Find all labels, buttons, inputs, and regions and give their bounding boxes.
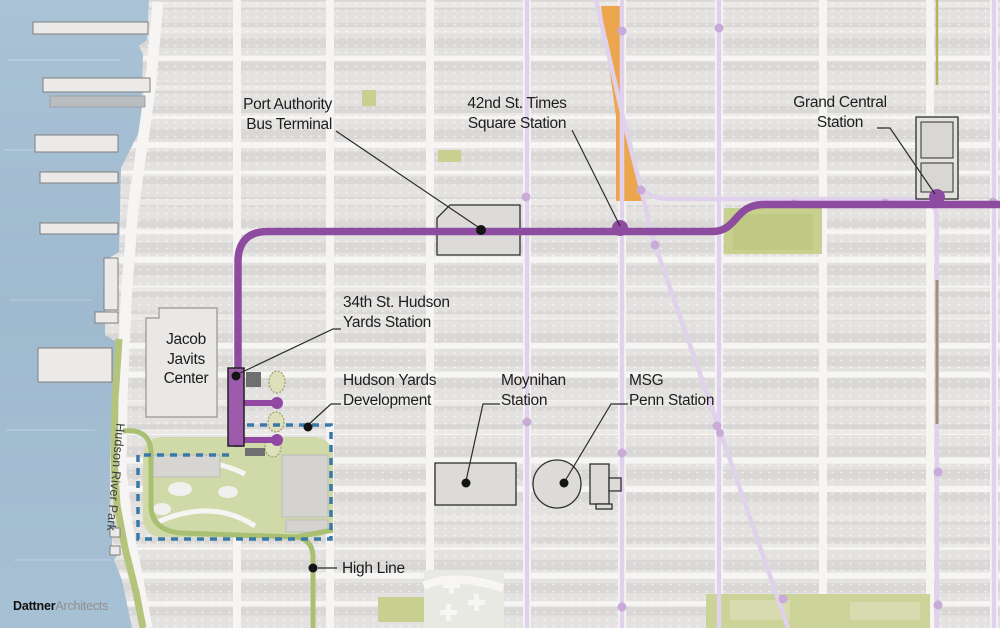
leader-hudson-yards-dev xyxy=(308,404,341,425)
leader-port-authority xyxy=(336,131,481,229)
route-broadway xyxy=(596,0,788,628)
site-pond xyxy=(153,503,171,515)
pier-76 xyxy=(38,348,112,382)
grand-central-station-dot xyxy=(929,189,945,205)
station-dot xyxy=(934,468,943,477)
label-line: Hudson Yards xyxy=(343,371,436,391)
label-line: Development xyxy=(343,391,436,411)
station-dot xyxy=(522,193,531,202)
label-line: Center xyxy=(146,369,226,389)
label-line: Javits xyxy=(146,350,226,370)
label-line: Station xyxy=(775,113,905,133)
label-grand-central: Grand Central Station xyxy=(775,93,905,132)
station-entrance xyxy=(271,434,283,446)
bryant-park-lawn xyxy=(733,214,813,250)
station-dot xyxy=(618,27,627,36)
small-park xyxy=(378,597,424,622)
station-dot xyxy=(716,429,724,437)
site-pond xyxy=(168,482,192,496)
station-dot xyxy=(934,601,943,610)
site-building xyxy=(282,455,328,517)
small-park xyxy=(438,150,461,162)
high-line-dot xyxy=(309,564,318,573)
label-line: Jacob xyxy=(146,330,226,350)
label-line: High Line xyxy=(342,559,405,579)
label-high-line: High Line xyxy=(342,559,405,579)
label-hudson-yards-station: 34th St. Hudson Yards Station xyxy=(343,293,450,332)
vent-structure xyxy=(245,448,265,456)
leader-times-square xyxy=(572,130,620,226)
times-square-station-dot xyxy=(612,220,628,236)
label-port-authority: Port Authority Bus Terminal xyxy=(200,95,332,134)
msg-annex xyxy=(609,478,621,491)
pier xyxy=(33,22,148,34)
moynihan-dot xyxy=(462,479,471,488)
leader-lines xyxy=(236,128,935,568)
label-line: 42nd St. Times xyxy=(457,94,577,114)
label-line: Square Station xyxy=(457,114,577,134)
label-line: Station xyxy=(501,391,566,411)
station-dot xyxy=(618,603,627,612)
logo-light: Architects xyxy=(55,599,108,613)
garden-blob xyxy=(269,371,285,393)
pier xyxy=(35,135,118,152)
label-hudson-yards-dev: Hudson Yards Development xyxy=(343,371,436,410)
logo-bold: Dattner xyxy=(13,599,55,613)
docked-ship xyxy=(50,96,145,107)
label-line: Bus Terminal xyxy=(200,115,332,135)
hudson-yards-dev-dot xyxy=(304,423,313,432)
hudson-yards-station-dot xyxy=(232,372,241,381)
station-dot xyxy=(779,595,788,604)
pier xyxy=(95,312,118,323)
site-building xyxy=(150,455,220,477)
dattner-architects-logo: DattnerArchitects xyxy=(13,599,108,613)
msg-dot xyxy=(560,479,569,488)
hudson-yards-transit-map: Port Authority Bus Terminal 42nd St. Tim… xyxy=(0,0,1000,628)
station-dot xyxy=(618,449,627,458)
shore-building xyxy=(104,258,118,310)
other-subway-routes xyxy=(527,0,994,628)
label-times-square: 42nd St. Times Square Station xyxy=(457,94,577,133)
vent-structure xyxy=(246,372,261,387)
port-authority-dot xyxy=(476,225,486,235)
label-javits: Jacob Javits Center xyxy=(146,330,226,389)
label-line: 34th St. Hudson xyxy=(343,293,450,313)
msg-entrance xyxy=(596,504,612,509)
moynihan-building xyxy=(435,463,516,505)
landmark-buildings xyxy=(435,117,958,509)
station-dot xyxy=(715,24,724,33)
grand-central-south-hall xyxy=(921,163,953,192)
station-dot xyxy=(651,241,660,250)
label-line: Penn Station xyxy=(629,391,714,411)
pier xyxy=(43,78,150,92)
hudson-yards-site xyxy=(143,437,333,537)
pier xyxy=(40,223,118,234)
station-dot xyxy=(637,186,646,195)
label-line: Moynihan xyxy=(501,371,566,391)
site-pond xyxy=(218,486,238,498)
station-entrance xyxy=(271,397,283,409)
label-msg: MSG Penn Station xyxy=(629,371,714,410)
small-park xyxy=(362,90,376,106)
grand-central-north-hall xyxy=(921,122,953,158)
park-patch xyxy=(850,602,920,620)
garden-blob xyxy=(268,412,284,432)
pier-stub xyxy=(110,546,120,555)
label-line: Yards Station xyxy=(343,313,450,333)
label-line: Grand Central xyxy=(775,93,905,113)
station-dot xyxy=(523,418,532,427)
local-station-dots xyxy=(522,24,998,612)
msg-theater xyxy=(590,464,609,504)
parks xyxy=(362,90,930,628)
chelsea-park xyxy=(424,570,504,628)
leader-hudson-yards-station xyxy=(236,329,341,375)
label-line: Port Authority xyxy=(200,95,332,115)
label-moynihan: Moynihan Station xyxy=(501,371,566,410)
pier xyxy=(40,172,118,183)
label-line: MSG xyxy=(629,371,714,391)
